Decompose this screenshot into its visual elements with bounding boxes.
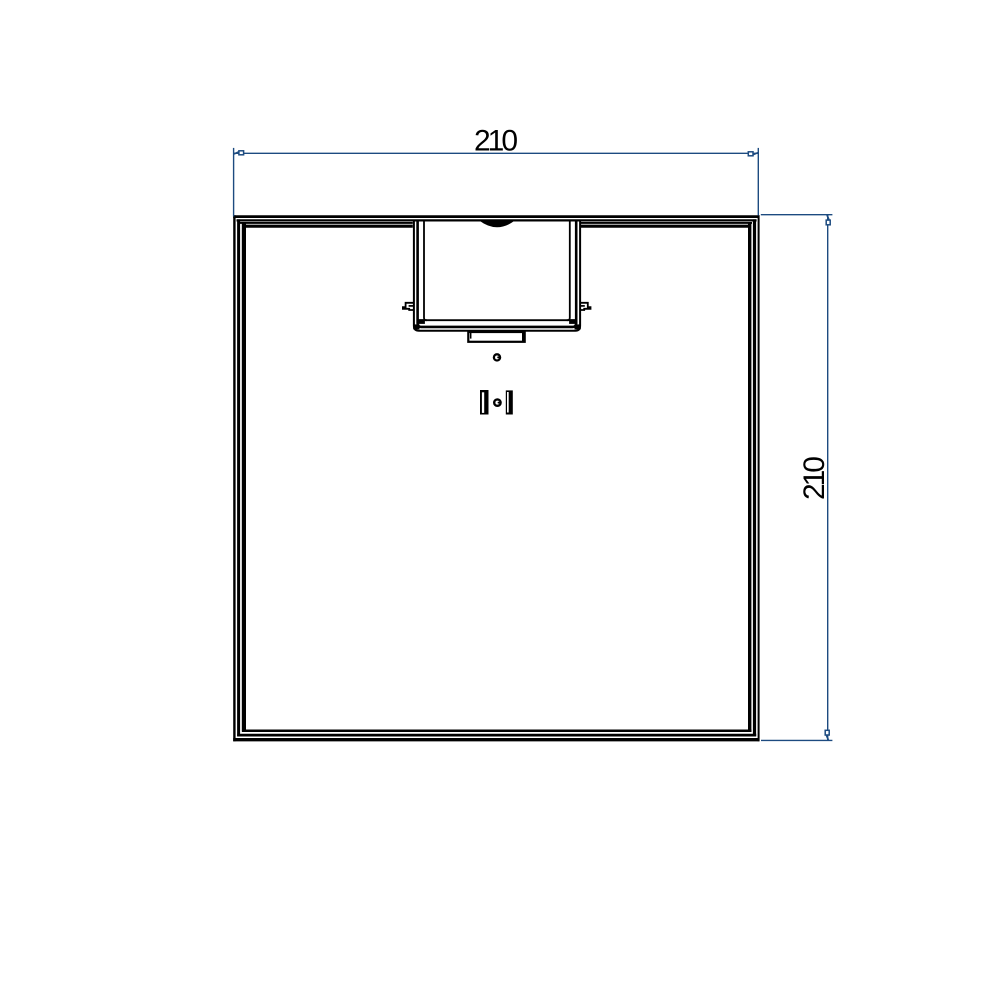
svg-text:210: 210 — [474, 124, 518, 157]
svg-text:210: 210 — [798, 456, 831, 500]
